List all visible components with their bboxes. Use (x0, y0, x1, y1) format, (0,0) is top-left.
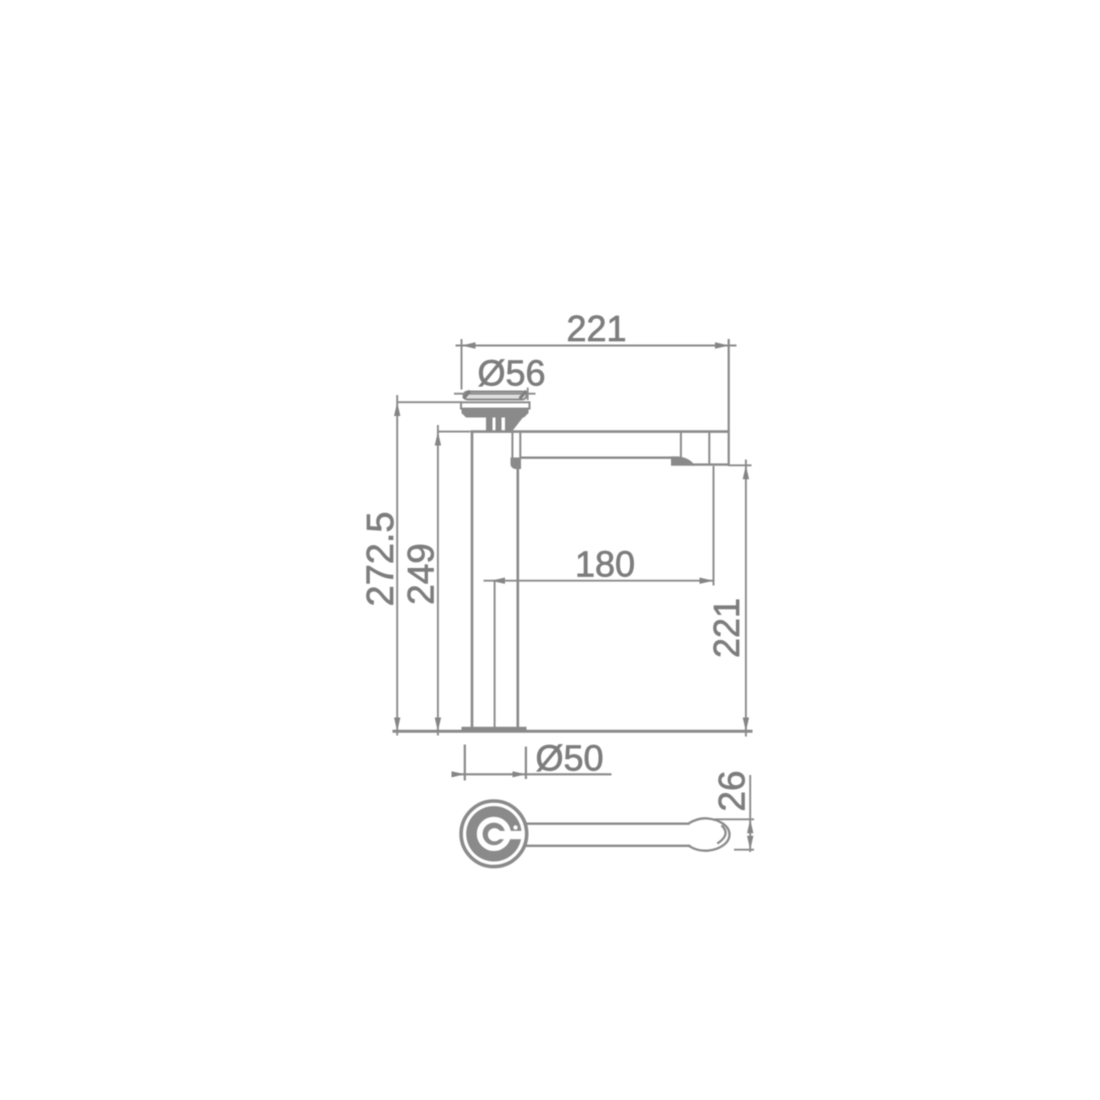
svg-text:180: 180 (575, 544, 635, 585)
svg-text:221: 221 (566, 308, 626, 349)
svg-text:Ø56: Ø56 (477, 353, 545, 394)
svg-text:Ø50: Ø50 (535, 737, 603, 778)
svg-text:26: 26 (712, 770, 753, 811)
svg-text:221: 221 (706, 598, 747, 658)
svg-text:272.5: 272.5 (360, 511, 402, 606)
svg-text:249: 249 (401, 543, 442, 605)
